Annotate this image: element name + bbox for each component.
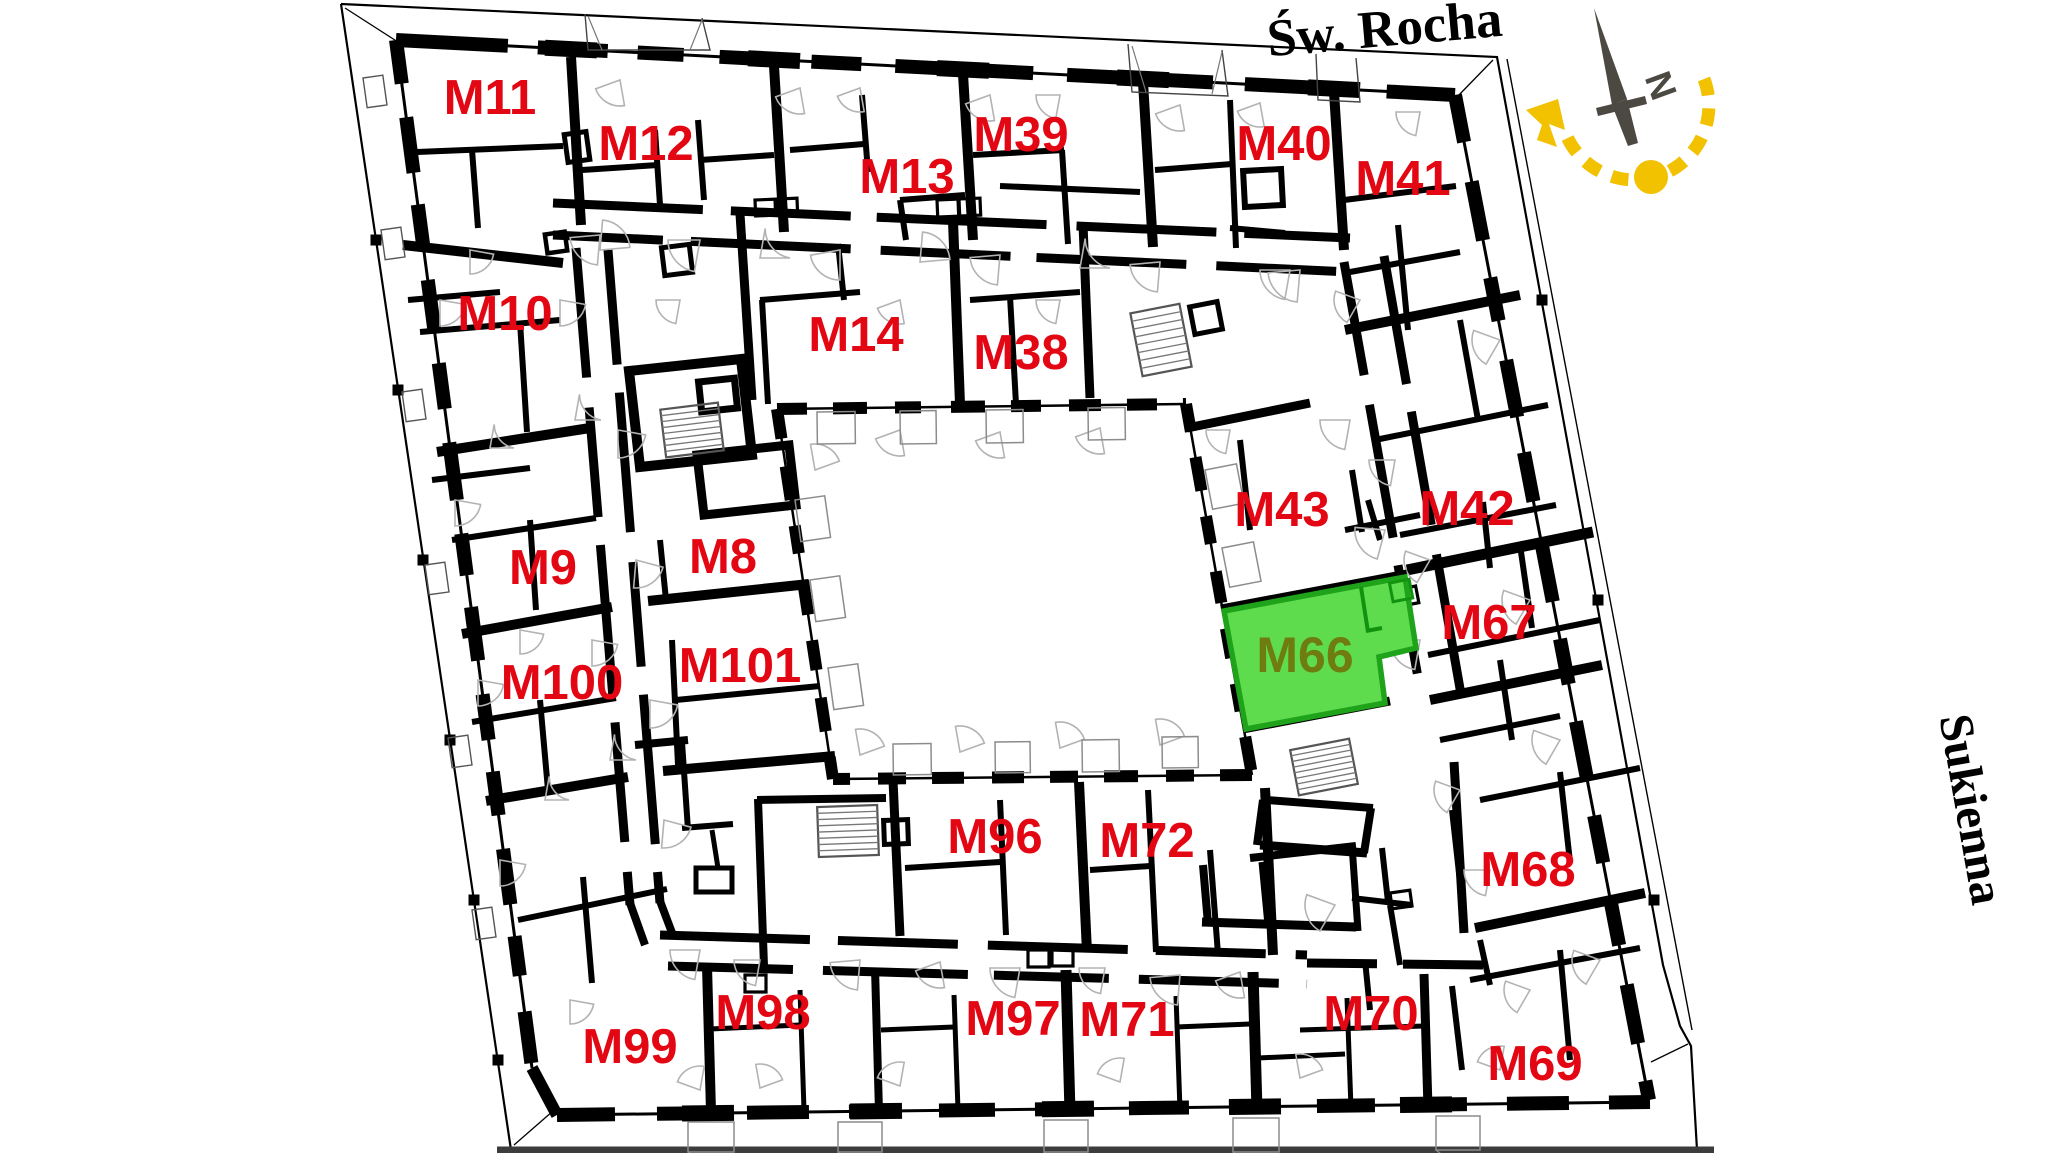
svg-text:M13: M13	[859, 150, 954, 204]
svg-text:M40: M40	[1236, 117, 1331, 171]
svg-text:M43: M43	[1234, 483, 1329, 537]
svg-text:M38: M38	[973, 326, 1068, 380]
svg-text:M14: M14	[808, 308, 903, 362]
svg-text:M11: M11	[444, 71, 537, 125]
svg-text:M98: M98	[715, 986, 810, 1040]
svg-text:M71: M71	[1079, 993, 1174, 1047]
svg-text:M101: M101	[679, 639, 802, 693]
svg-text:M12: M12	[598, 117, 693, 171]
svg-text:M96: M96	[947, 810, 1042, 864]
svg-text:M66: M66	[1256, 627, 1353, 683]
svg-text:M69: M69	[1487, 1037, 1582, 1091]
svg-text:M67: M67	[1441, 596, 1536, 650]
svg-text:M10: M10	[457, 287, 552, 341]
svg-text:M97: M97	[965, 992, 1060, 1046]
svg-text:M68: M68	[1480, 843, 1575, 897]
svg-text:M70: M70	[1323, 987, 1418, 1041]
svg-text:M99: M99	[582, 1020, 677, 1074]
svg-text:M41: M41	[1355, 152, 1450, 206]
svg-text:M8: M8	[689, 530, 757, 584]
svg-text:M9: M9	[509, 541, 577, 595]
svg-text:M72: M72	[1099, 814, 1194, 868]
svg-text:M42: M42	[1419, 482, 1514, 536]
svg-text:M100: M100	[501, 656, 624, 710]
svg-text:M39: M39	[973, 108, 1068, 162]
